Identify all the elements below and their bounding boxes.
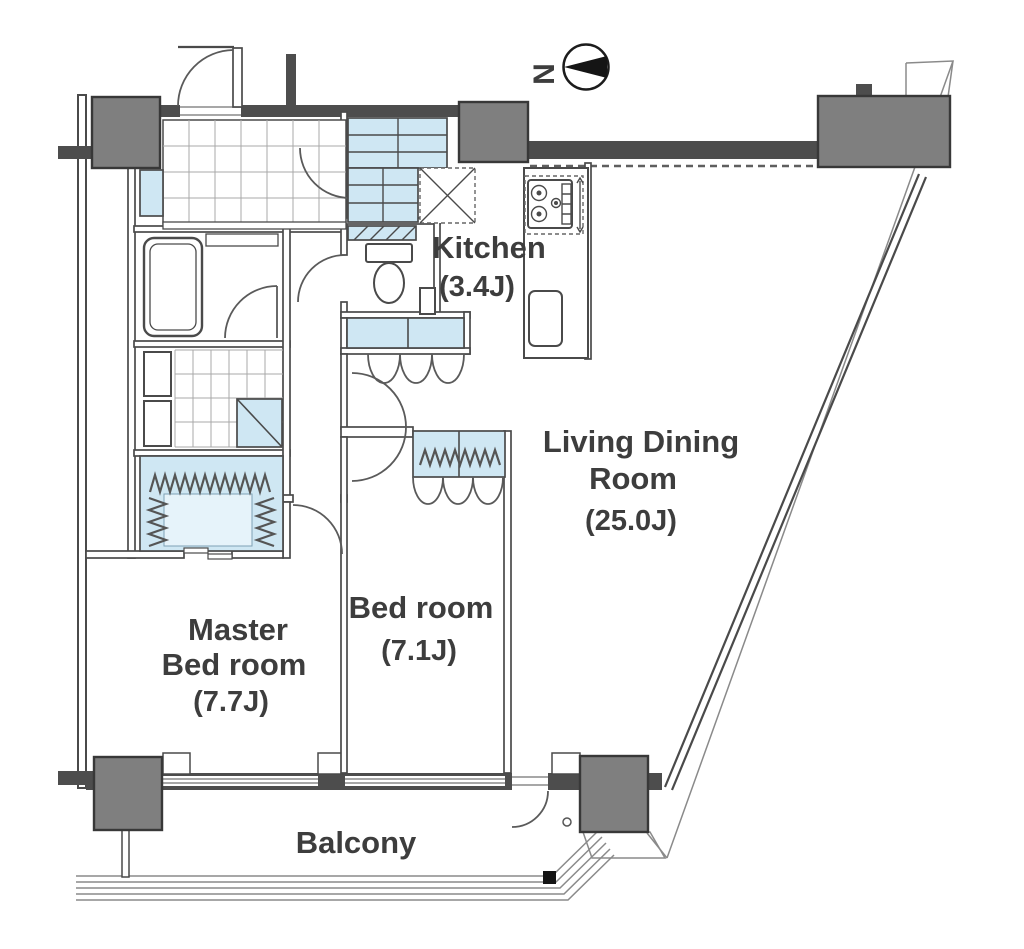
bedroom-door-arc-up <box>352 373 406 427</box>
top-wall-left-a <box>160 105 180 117</box>
master-window <box>163 776 318 786</box>
hall-left-wall <box>283 228 290 498</box>
toilet-door-arc <box>298 255 345 302</box>
washroom <box>144 350 283 447</box>
vanity-cabinet-1 <box>144 352 171 396</box>
kitchen-label: Kitchen <box>432 230 546 265</box>
sliding-door-mark-1 <box>184 548 208 553</box>
hall-connector-wall <box>283 502 290 558</box>
railing-post <box>543 871 556 884</box>
walk-in-closet <box>140 456 283 559</box>
diagonal-window-wall <box>647 61 953 858</box>
bathroom-door-arc <box>225 286 277 338</box>
bedroom-right-wall <box>504 431 511 773</box>
toilet-bottom-wall <box>341 312 470 318</box>
bedroom-top-wall-stub <box>341 427 413 437</box>
entrance-mat <box>140 170 163 216</box>
bedroom-closet <box>413 431 505 504</box>
bedroom-left-wall <box>341 437 347 773</box>
balcony-label: Balcony <box>296 825 417 860</box>
master-door-arc <box>293 505 342 554</box>
master-bedroom-label-1: Master <box>188 612 288 647</box>
living-dining-label-1: Living Dining <box>543 424 739 459</box>
washroom-closet-wall <box>134 450 290 456</box>
toilet-washbasin <box>420 288 435 314</box>
compass-icon: N <box>528 45 609 90</box>
window-pier-1 <box>163 753 190 774</box>
pipe-space <box>420 168 475 223</box>
column-bottom-center <box>580 756 648 832</box>
north-label: N <box>528 63 561 85</box>
kitchen-sink <box>529 291 562 346</box>
drain-icon <box>563 818 571 826</box>
window-pier-3 <box>552 753 580 774</box>
master-top-wall-b <box>232 551 283 558</box>
column-top-right <box>818 96 950 167</box>
stove-icon <box>528 180 572 228</box>
vanity-cabinet-2 <box>144 401 171 446</box>
kitchen-area-label: (3.4J) <box>439 271 515 303</box>
entrance-door-leaf <box>233 48 242 107</box>
balcony-divider <box>122 830 129 877</box>
master-bedroom-area-label: (7.7J) <box>193 686 269 718</box>
master-top-wall-a <box>86 551 184 558</box>
bathroom-washroom-wall <box>134 341 290 347</box>
toilet-room <box>298 226 435 314</box>
left-outer-wall <box>78 95 86 788</box>
balcony-door-arc <box>512 791 548 827</box>
column-top-center <box>459 102 528 162</box>
wall-stub-top-left <box>58 146 92 159</box>
bathroom <box>144 234 278 338</box>
closet-floor <box>164 494 252 546</box>
floor-plan: N Kitchen (3.4J) Living Dining Room (25.… <box>0 0 1024 949</box>
column-top-left <box>92 97 160 168</box>
floor-plan-drawing: N Kitchen (3.4J) Living Dining Room (25.… <box>0 0 1024 949</box>
bedroom-area-label: (7.1J) <box>381 635 457 667</box>
toilet-tank <box>366 244 412 262</box>
bedroom-closet-door-arcs <box>413 477 503 504</box>
washing-machine-pan <box>237 399 282 447</box>
bathtub-inner <box>150 244 196 330</box>
sliding-door-mark-2 <box>208 554 232 559</box>
entrance-step <box>163 222 346 229</box>
bedroom-window <box>345 776 505 786</box>
hall-closet-door-arcs <box>368 354 464 383</box>
hall-closet-bottom-wall <box>341 348 470 354</box>
alcove-jamb <box>286 54 296 107</box>
bedroom-label: Bed room <box>349 590 494 625</box>
entrance-door-arc <box>178 50 233 106</box>
toilet-bowl <box>374 263 404 303</box>
living-dining-area-label: (25.0J) <box>585 505 677 537</box>
master-bedroom-label-2: Bed room <box>162 647 307 682</box>
top-wall-left-b <box>241 105 460 117</box>
hall-bottom-wall-a <box>283 495 293 502</box>
entrance <box>140 118 475 229</box>
top-wall-right <box>528 141 818 159</box>
living-dining-label-2: Room <box>589 461 677 496</box>
hall-bedroom-wall <box>341 354 347 429</box>
door-arcs <box>293 373 406 554</box>
column-bottom-left <box>94 757 162 830</box>
bath-counter <box>206 234 278 246</box>
balcony-door-opening <box>512 773 548 790</box>
bottom-wall-right-piece <box>648 773 662 790</box>
